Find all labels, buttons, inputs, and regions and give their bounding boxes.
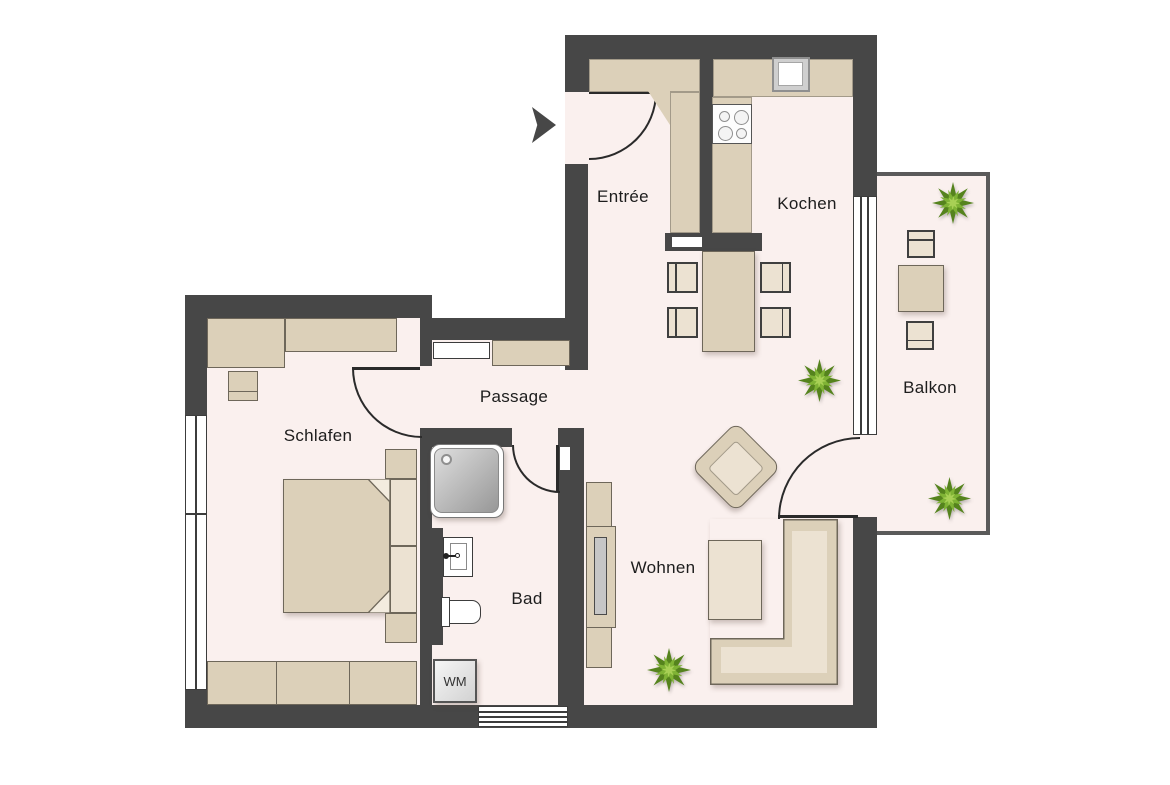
bed-sheet-fold [368, 479, 390, 502]
sofa [710, 519, 838, 685]
pillow [390, 546, 417, 613]
niche-peninsula [672, 237, 702, 247]
entrance-arrow-icon [532, 107, 556, 143]
bed-sheet-fold [368, 590, 390, 613]
wall-entrance-upper [565, 59, 589, 92]
dining-table [702, 251, 755, 352]
door-leaf-balkon [778, 515, 858, 518]
balcony-table [898, 265, 944, 312]
plant-icon [798, 359, 841, 402]
closet-shelf-niche [433, 342, 490, 359]
tv-screen [594, 537, 607, 615]
balcony-chair [907, 230, 935, 258]
plant-icon [647, 648, 691, 692]
dining-chair [667, 262, 698, 293]
nightstand [385, 613, 417, 643]
wall-left-upper [185, 295, 207, 415]
plant-icon [928, 477, 971, 520]
plant-icon [932, 182, 974, 224]
room-label-kochen: Kochen [777, 194, 836, 214]
closet-cabinet [492, 340, 570, 366]
floor-passage-kitchen-opening [558, 370, 589, 428]
balcony-chair [906, 321, 934, 350]
washing-machine: WM [433, 659, 477, 703]
wall-right-lower [853, 517, 877, 728]
floor-entrance-opening [565, 92, 589, 164]
wall-schlafen-bad-jamb [420, 318, 432, 366]
toilet [449, 600, 481, 624]
room-label-entree: Entrée [597, 187, 649, 207]
window-kochen-balkon [853, 196, 877, 435]
wall-right-upper [853, 59, 877, 196]
window-bad-bottom [478, 706, 568, 727]
window-schlafen-left [185, 415, 207, 690]
pillow [390, 479, 417, 546]
wall-closet-band [420, 318, 588, 340]
room-label-schlafen: Schlafen [284, 426, 353, 446]
balcony-railing-bottom [866, 531, 990, 535]
wall-top [565, 35, 877, 59]
entree-counter-side [670, 92, 700, 233]
dining-chair [760, 307, 791, 338]
door-leaf-schlafen [352, 367, 420, 370]
wardrobe [285, 318, 397, 352]
niche-divider [560, 447, 570, 470]
wall-schlafen-top [185, 295, 432, 318]
door-leaf-bad [556, 445, 559, 491]
shower-drain [441, 454, 452, 465]
washing-machine-label: WM [443, 674, 466, 689]
dining-chair [667, 307, 698, 338]
wardrobe-bottom [207, 661, 417, 705]
balcony-railing-top [866, 172, 990, 176]
floor-plan: WM Entrée Kochen Balkon Passage Schlafen… [0, 0, 1170, 785]
room-label-balkon: Balkon [903, 378, 957, 398]
kitchen-sink [772, 57, 810, 92]
entree-counter-top [589, 59, 700, 92]
nightstand [385, 449, 417, 479]
dining-chair [760, 262, 791, 293]
washbasin [443, 537, 473, 577]
balcony-railing-right [986, 172, 990, 535]
shower [430, 444, 504, 518]
stove [712, 104, 752, 144]
room-label-bad: Bad [511, 589, 542, 609]
room-label-wohnen: Wohnen [631, 558, 696, 578]
stool [228, 371, 258, 401]
room-label-passage: Passage [480, 387, 548, 407]
wardrobe [207, 318, 285, 368]
wall-bad-pier [430, 528, 443, 645]
